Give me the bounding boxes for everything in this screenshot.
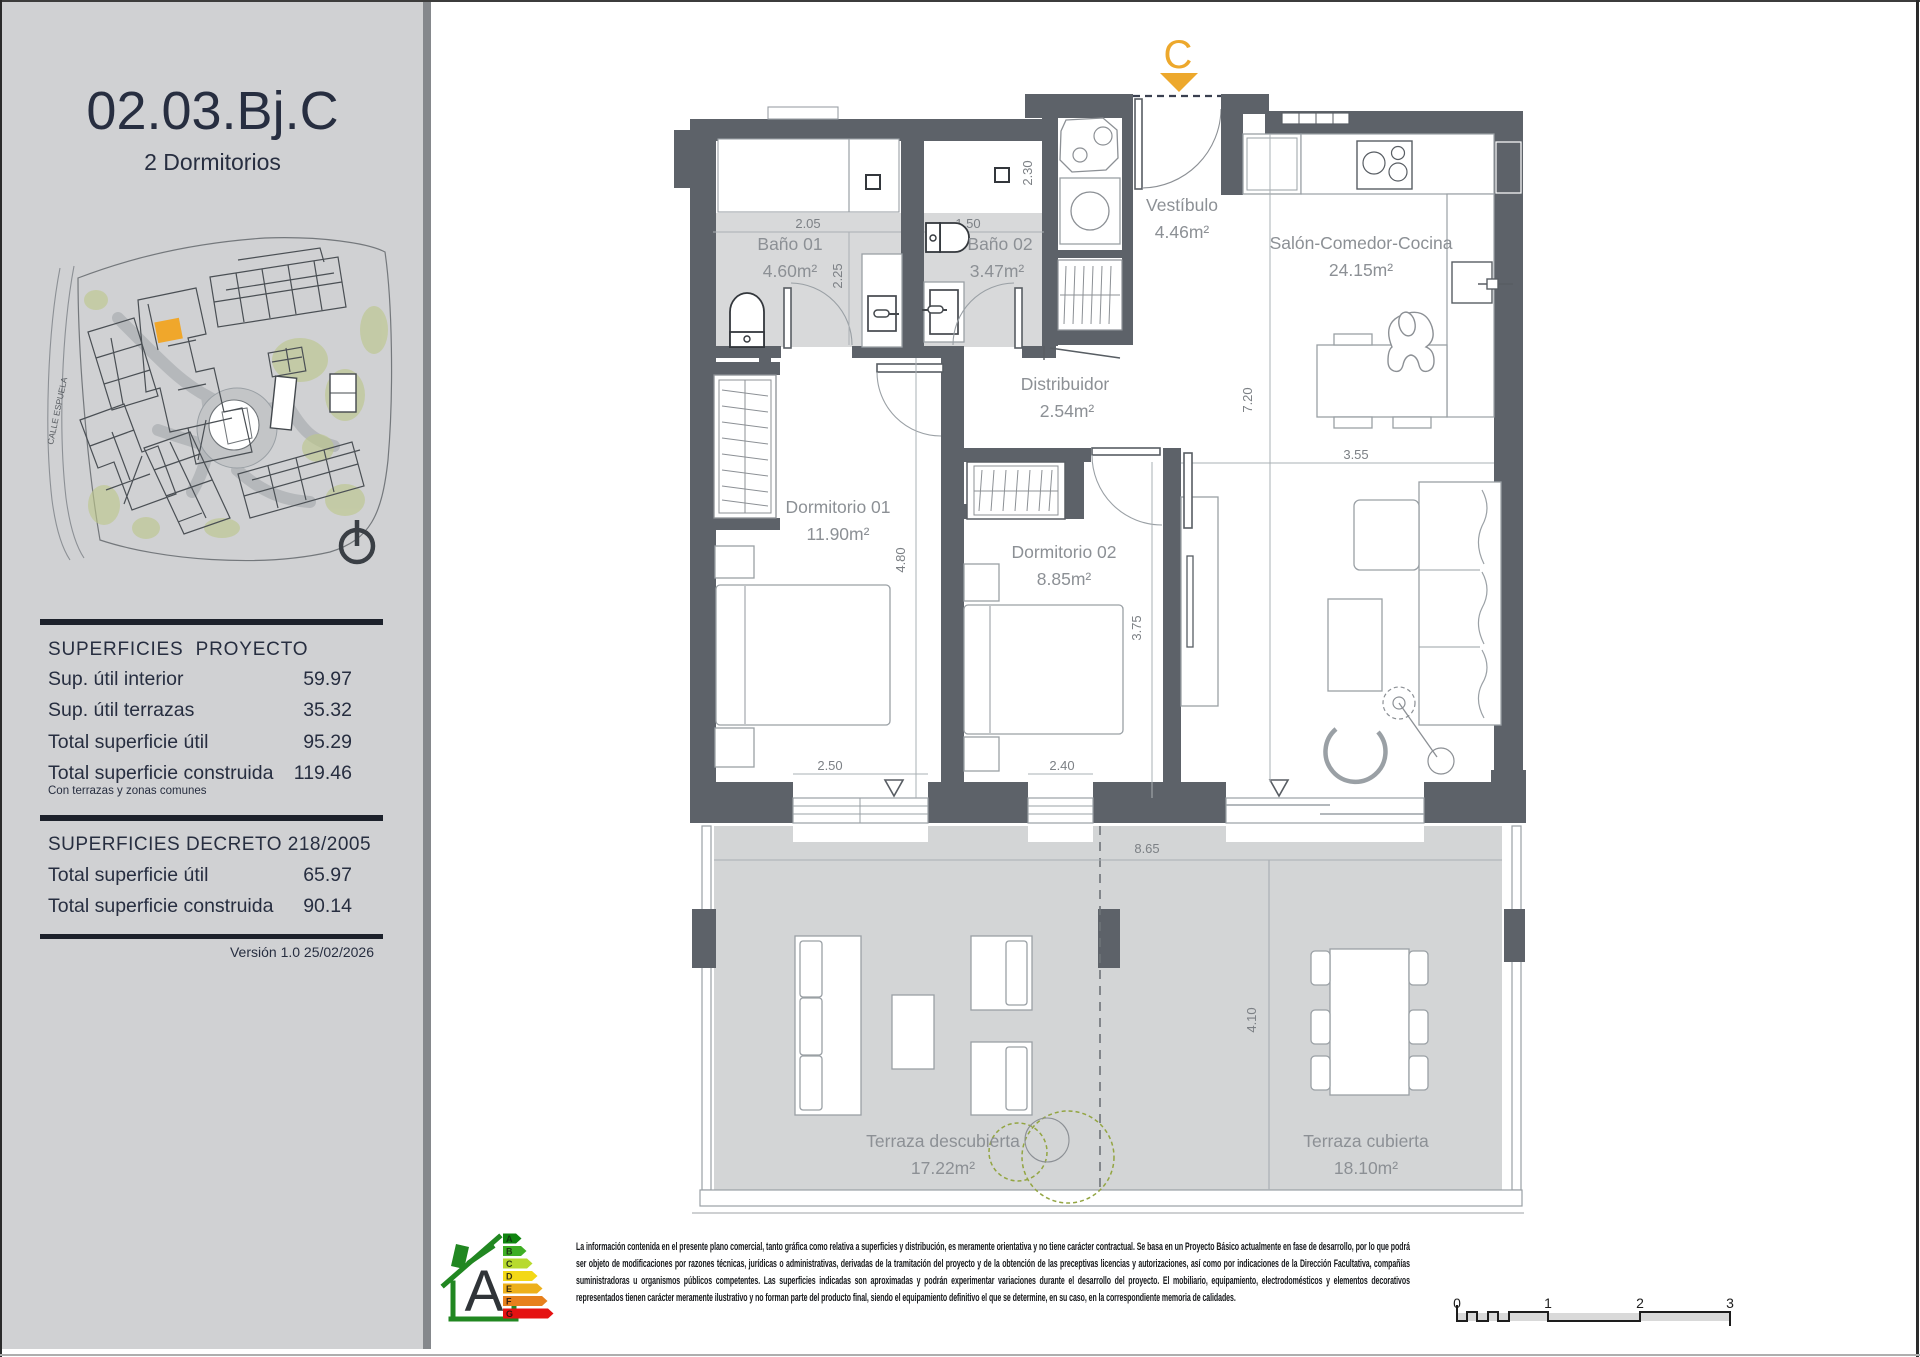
svg-text:4.80: 4.80 [893, 547, 908, 572]
svg-text:E: E [506, 1284, 512, 1294]
svg-text:C: C [1164, 33, 1193, 77]
svg-text:8.85m²: 8.85m² [1037, 569, 1092, 589]
svg-text:2.54m²: 2.54m² [1040, 401, 1095, 421]
svg-text:Baño 01: Baño 01 [757, 234, 822, 254]
svg-text:2.25: 2.25 [830, 263, 845, 288]
svg-text:G: G [506, 1309, 513, 1319]
svg-text:B: B [506, 1247, 513, 1257]
svg-text:18.10m²: 18.10m² [1334, 1158, 1398, 1178]
svg-text:Baño 02: Baño 02 [967, 234, 1032, 254]
svg-text:Terraza descubierta: Terraza descubierta [866, 1131, 1020, 1151]
svg-text:2.05: 2.05 [795, 216, 820, 231]
svg-text:2.50: 2.50 [817, 758, 842, 773]
svg-text:Terraza cubierta: Terraza cubierta [1303, 1131, 1429, 1151]
svg-text:Distribuidor: Distribuidor [1021, 374, 1110, 394]
svg-text:D: D [506, 1272, 513, 1282]
svg-text:A: A [506, 1234, 513, 1244]
svg-text:F: F [506, 1297, 512, 1307]
svg-text:C: C [506, 1259, 513, 1269]
svg-text:3: 3 [1726, 1295, 1734, 1311]
svg-text:2.40: 2.40 [1049, 758, 1074, 773]
svg-text:0: 0 [1453, 1295, 1461, 1311]
svg-text:3.47m²: 3.47m² [970, 261, 1025, 281]
svg-text:8.65: 8.65 [1134, 841, 1159, 856]
svg-text:Dormitorio 01: Dormitorio 01 [785, 497, 890, 517]
svg-text:24.15m²: 24.15m² [1329, 260, 1393, 280]
svg-text:7.20: 7.20 [1240, 387, 1255, 412]
svg-text:2.30: 2.30 [1020, 160, 1035, 185]
svg-text:Salón-Comedor-Cocina: Salón-Comedor-Cocina [1270, 233, 1453, 253]
svg-text:4.10: 4.10 [1244, 1007, 1259, 1032]
svg-text:Dormitorio 02: Dormitorio 02 [1011, 542, 1116, 562]
svg-text:1: 1 [1544, 1295, 1552, 1311]
svg-text:A: A [465, 1259, 504, 1324]
svg-text:3.55: 3.55 [1343, 447, 1368, 462]
svg-text:4.46m²: 4.46m² [1155, 222, 1210, 242]
svg-text:2: 2 [1636, 1295, 1644, 1311]
svg-text:3.75: 3.75 [1129, 615, 1144, 640]
svg-text:11.90m²: 11.90m² [807, 524, 870, 544]
svg-text:Vestíbulo: Vestíbulo [1146, 195, 1218, 215]
svg-text:17.22m²: 17.22m² [911, 1158, 975, 1178]
svg-text:4.60m²: 4.60m² [763, 261, 818, 281]
